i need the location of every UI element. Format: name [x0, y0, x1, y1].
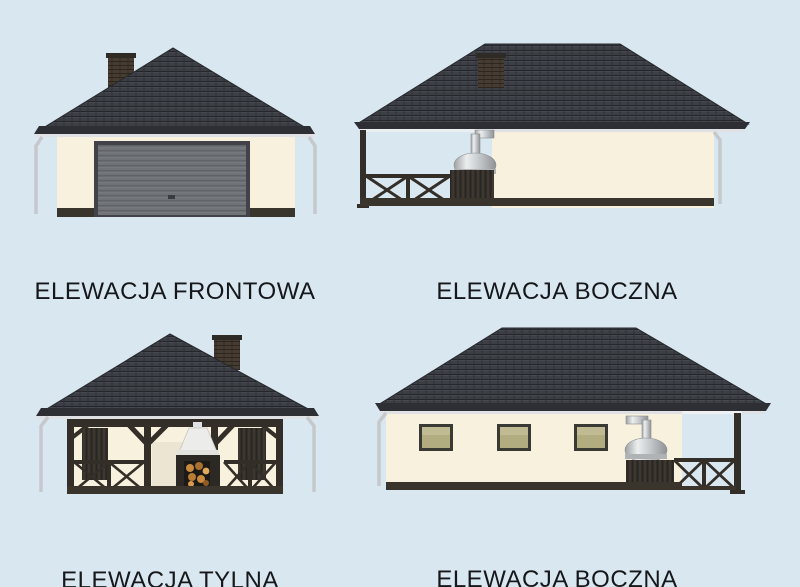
gutter: [35, 134, 314, 137]
gutter: [37, 416, 318, 419]
front-elevation-drawing: [28, 42, 328, 232]
vent-hood-rim: [625, 454, 667, 459]
plinth: [67, 486, 283, 494]
windows: [419, 424, 608, 451]
porch-railing: [674, 458, 735, 489]
downspout-left: [41, 417, 48, 492]
garage-door-handle: [168, 195, 175, 199]
downspout-right: [309, 137, 315, 214]
downspout-right: [714, 132, 720, 204]
rear-elevation-drawing: [28, 322, 328, 512]
left-side-elevation-drawing: [352, 36, 752, 221]
window-1: [419, 424, 453, 451]
vent-pipe: [454, 130, 496, 177]
plinth-right: [246, 208, 295, 217]
label-elewacja-tylna: ELEWACJA TYLNA: [20, 513, 320, 587]
porch-soffit: [360, 129, 494, 132]
hip-roof: [45, 334, 310, 410]
chimney: [476, 53, 506, 88]
downspout-left: [36, 137, 42, 214]
window-2: [497, 424, 531, 451]
plinth: [360, 198, 714, 206]
wall: [492, 132, 714, 208]
elevation-sheet: ELEWACJA FRONTOWA: [0, 0, 800, 587]
right-side-elevation-drawing: [374, 320, 774, 505]
fascia-board: [36, 408, 319, 416]
label-line1: ELEWACJA TYLNA: [20, 567, 320, 587]
garage-door: [94, 141, 250, 217]
hip-roof: [43, 48, 306, 128]
porch-soffit: [682, 411, 742, 414]
fascia-board: [354, 122, 750, 129]
label-line1: ELEWACJA BOCZNA: [407, 566, 707, 587]
plinth-left: [57, 208, 98, 217]
hip-roof: [357, 44, 748, 124]
downspout-right: [307, 417, 314, 492]
fascia-board: [375, 403, 771, 411]
porch-corner-post: [357, 130, 369, 208]
hip-roof: [378, 328, 768, 405]
porch-floor-edge: [674, 486, 736, 490]
window-3: [574, 424, 608, 451]
label-elewacja-boczna-prawa: ELEWACJA BOCZNA PRAWA: [407, 512, 707, 587]
downspout-left: [379, 413, 386, 486]
fascia-board: [34, 126, 315, 134]
porch-corner-post: [730, 413, 745, 494]
plinth: [386, 482, 682, 490]
porch-beam: [67, 419, 283, 427]
label-line1: ELEWACJA BOCZNA: [407, 278, 707, 305]
label-line1: ELEWACJA FRONTOWA: [25, 278, 325, 305]
